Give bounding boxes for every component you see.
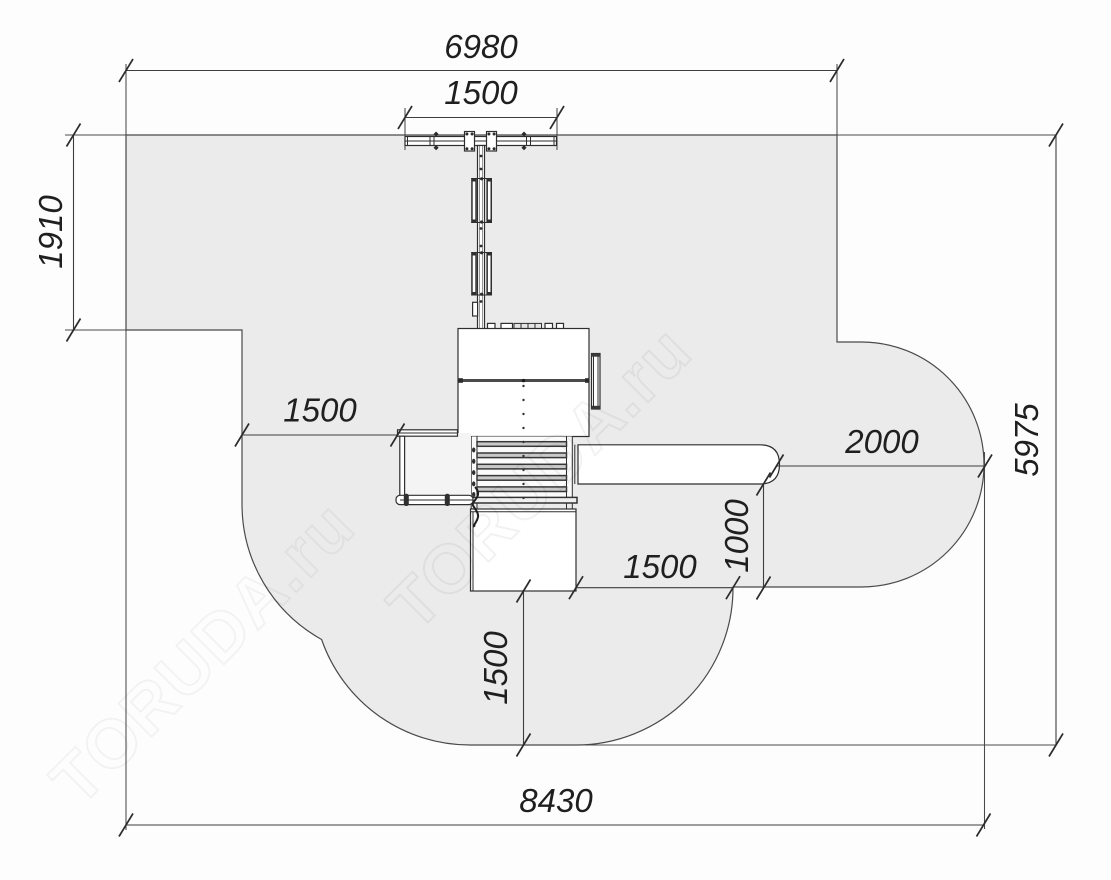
svg-text:1910: 1910 — [32, 195, 69, 269]
svg-text:1500: 1500 — [283, 392, 357, 429]
svg-text:6980: 6980 — [444, 28, 518, 65]
svg-text:1500: 1500 — [477, 631, 514, 705]
svg-text:8430: 8430 — [519, 782, 593, 819]
svg-text:1500: 1500 — [444, 74, 518, 111]
svg-text:1000: 1000 — [718, 499, 755, 573]
svg-text:1500: 1500 — [623, 548, 697, 585]
svg-text:5975: 5975 — [1008, 403, 1045, 477]
svg-text:2000: 2000 — [844, 423, 919, 460]
